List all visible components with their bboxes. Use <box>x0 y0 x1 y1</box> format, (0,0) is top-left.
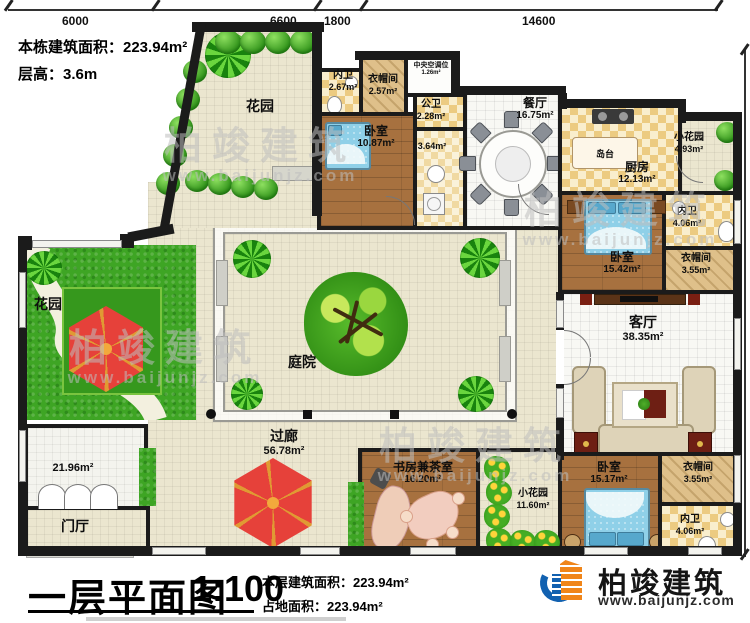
bush-icon <box>231 176 255 198</box>
palm-tree-icon <box>458 376 494 412</box>
kitchen-label: 厨房12.13m² <box>610 160 664 186</box>
cloak-right-label: 衣帽间3.55m² <box>664 253 728 275</box>
palm-tree-icon <box>26 251 62 285</box>
courtyard-corner-dot <box>507 409 517 419</box>
cloak-top-label: 衣帽间2.57m² <box>357 74 409 96</box>
living-label: 客厅38.35m² <box>608 314 678 343</box>
window <box>556 300 564 328</box>
entrance-arch <box>90 484 118 509</box>
pillow <box>588 202 616 214</box>
dimension-line-top <box>8 9 718 11</box>
garden-top-label: 花园 <box>215 98 305 115</box>
building-area-note: 本栋建筑面积：223.94m² <box>18 36 187 57</box>
courtyard-corner-dot <box>206 409 216 419</box>
floor-area-note: 本层建筑面积：223.94m² <box>262 572 409 591</box>
palm-tree-icon <box>231 378 263 410</box>
wall <box>312 24 322 216</box>
cloak-bottom-label: 衣帽间3.55m² <box>666 462 730 484</box>
window <box>584 547 628 555</box>
pillow <box>617 532 644 546</box>
garden-small-b-label: 小花园11.60m² <box>504 488 562 510</box>
entrance-arch <box>64 484 92 509</box>
courtyard-post <box>390 410 399 419</box>
patio-label: 21.96m² <box>38 462 108 475</box>
wall <box>355 51 459 60</box>
window <box>152 547 206 555</box>
wall-post <box>18 236 32 250</box>
wall <box>18 546 742 556</box>
bedroom-right-room <box>558 191 666 294</box>
window <box>734 200 741 244</box>
tv-side-panel <box>688 294 700 305</box>
dim-tick <box>714 0 724 11</box>
window <box>19 430 26 482</box>
courtyard-pillar <box>499 260 511 306</box>
bottom-edge-bar <box>86 617 346 621</box>
bush-icon <box>208 173 232 195</box>
island-label: 岛台 <box>596 147 614 160</box>
land-area-note: 占地面积：223.94m² <box>262 596 383 615</box>
table-plant-icon <box>638 398 650 410</box>
courtyard-pillar <box>499 336 511 382</box>
wall <box>678 112 740 121</box>
dim-top-6000: 6000 <box>62 14 89 28</box>
window <box>32 240 122 248</box>
bath-bottom-label: 内卫4.06m² <box>664 514 716 536</box>
tv-icon <box>620 296 658 302</box>
garden-bench <box>272 166 316 181</box>
floor-height-note: 层高：3.6m <box>18 63 97 84</box>
bush-icon <box>240 30 266 54</box>
palm-tree-icon <box>460 238 500 278</box>
window <box>556 388 564 418</box>
bedroom-top-label: 卧室10.87m² <box>340 124 412 150</box>
stove-icon <box>592 109 634 124</box>
nightstand-icon <box>567 200 583 214</box>
foyer-label: 门厅 <box>40 518 110 535</box>
bush-icon <box>215 30 241 54</box>
stool-icon <box>452 492 465 505</box>
tv-side-panel <box>580 294 592 305</box>
hedge-strip <box>139 448 156 506</box>
brand-website: www.baijunjz.com <box>598 592 735 608</box>
window <box>734 318 741 370</box>
garden-small-tr-label: 小花园4.93m² <box>662 132 716 154</box>
courtyard-label: 庭院 <box>272 354 332 371</box>
corridor-label: 过廊56.78m² <box>246 428 322 457</box>
pillow <box>589 532 616 546</box>
dimension-line-right <box>744 50 746 557</box>
chair-icon <box>504 199 519 216</box>
window <box>688 547 722 555</box>
wall <box>192 22 324 32</box>
stool-icon <box>446 526 459 539</box>
sink-icon <box>427 165 445 183</box>
brand-logo-icon <box>540 558 590 608</box>
dim-top-14600: 14600 <box>522 14 555 28</box>
bush-icon <box>254 178 278 200</box>
bush-icon <box>185 170 209 192</box>
bedroom-bottom-label: 卧室15.17m² <box>576 460 642 486</box>
bedroom-right-label: 卧室15.42m² <box>592 250 652 276</box>
courtyard-pillar <box>216 336 228 382</box>
wall <box>451 86 566 95</box>
door-gap <box>556 330 564 384</box>
flower-bush-icon <box>484 456 510 481</box>
garden-left-label: 花园 <box>20 296 76 313</box>
entrance-arch <box>38 484 66 509</box>
bath-right-label: 内卫4.06m² <box>662 206 712 228</box>
pillow <box>618 202 646 214</box>
hedge-strip <box>348 482 364 548</box>
hall-364-label: 3.64m² <box>408 141 456 152</box>
dim-top-1800: 1800 <box>324 14 351 28</box>
chair-icon <box>459 156 476 171</box>
hvac-label: 中央空调位1.26m² <box>406 62 456 77</box>
title-underline <box>28 610 254 613</box>
stool-icon <box>400 510 413 523</box>
window <box>410 547 456 555</box>
dining-label: 餐厅16.75m² <box>510 96 560 122</box>
logo-building-blue <box>552 574 561 600</box>
study-label: 书房兼茶室16.20m² <box>380 460 466 486</box>
courtyard-post <box>303 410 312 419</box>
logo-building <box>560 560 582 600</box>
bush-icon <box>265 30 291 54</box>
window <box>300 547 340 555</box>
wall <box>558 99 686 108</box>
courtyard-pillar <box>216 260 228 306</box>
floor-plan-page: 本栋建筑面积：223.94m² 层高：3.6m 6000 6600 1800 1… <box>0 0 750 623</box>
bath-public-label: 公卫2.28m² <box>408 99 454 121</box>
coffee-table-icon <box>612 382 678 428</box>
window <box>734 455 741 503</box>
washer-icon <box>423 193 445 215</box>
palm-tree-icon <box>233 240 271 278</box>
